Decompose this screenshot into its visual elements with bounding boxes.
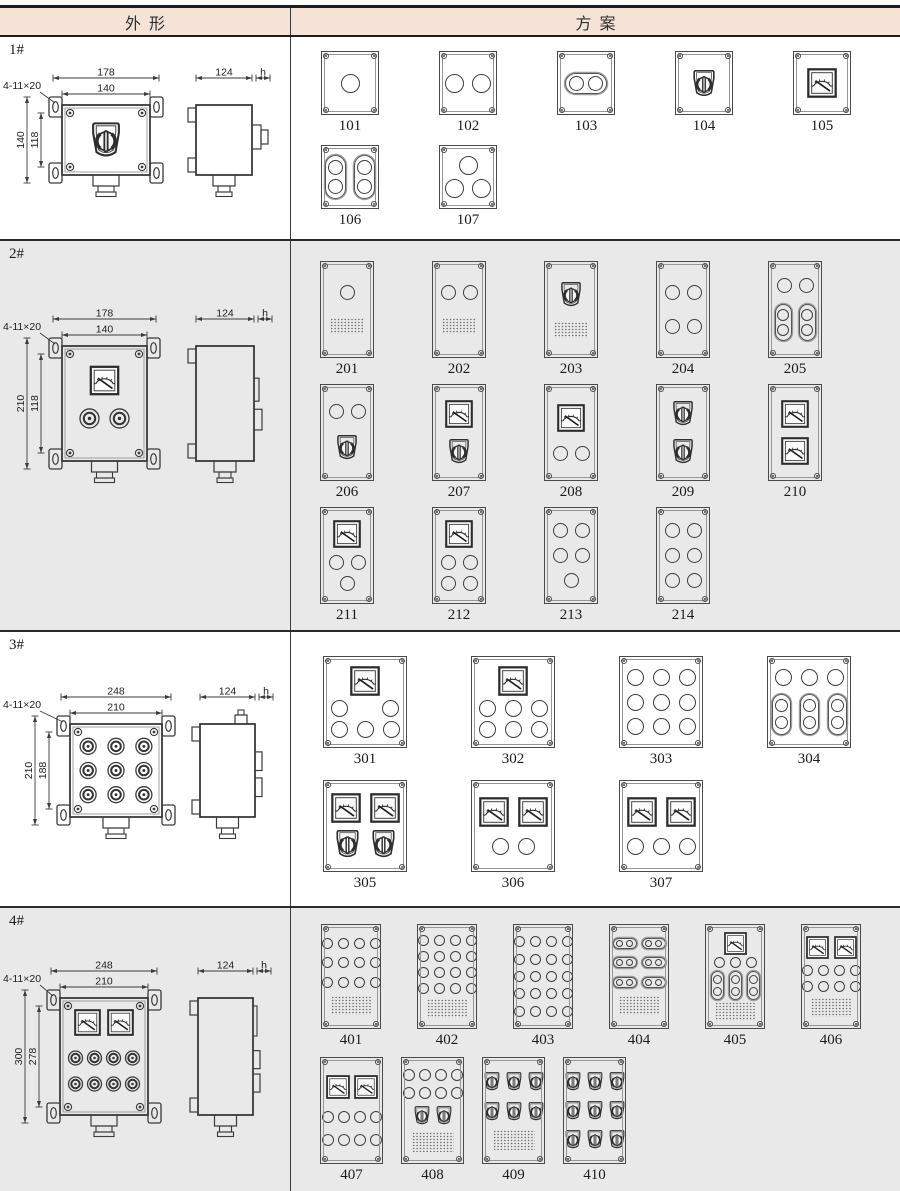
svg-text:4-11×20: 4-11×20 bbox=[3, 321, 41, 333]
button-icon bbox=[803, 699, 816, 712]
button-icon bbox=[653, 669, 670, 686]
panel-label: 409 bbox=[502, 1166, 525, 1184]
screw-icon bbox=[590, 509, 596, 515]
button-icon bbox=[546, 936, 557, 947]
screw-icon bbox=[325, 740, 331, 746]
panel-label: 207 bbox=[448, 483, 471, 501]
panel-row bbox=[333, 520, 361, 548]
scheme-slot: 304 bbox=[735, 656, 883, 768]
screw-icon bbox=[565, 1021, 571, 1027]
button-icon bbox=[418, 983, 429, 994]
screw-icon bbox=[621, 782, 627, 788]
screw-icon bbox=[795, 107, 801, 113]
button-icon bbox=[546, 988, 557, 999]
button-icon bbox=[354, 1111, 366, 1123]
panel-label: 201 bbox=[336, 360, 359, 378]
screw-icon bbox=[325, 864, 331, 870]
header-col-scheme: 方案 bbox=[291, 8, 900, 35]
panel-content bbox=[325, 390, 369, 475]
scheme-slot: 307 bbox=[587, 780, 735, 892]
panel-content bbox=[328, 786, 402, 866]
screw-icon bbox=[323, 53, 329, 59]
panel-content bbox=[773, 390, 817, 475]
screw-icon bbox=[590, 386, 596, 392]
selector-switch-icon bbox=[447, 438, 471, 465]
screw-icon bbox=[478, 386, 484, 392]
screw-icon bbox=[484, 1156, 490, 1162]
button-icon bbox=[713, 975, 722, 984]
button-icon bbox=[382, 700, 399, 717]
screw-icon bbox=[322, 386, 328, 392]
panel-row bbox=[613, 938, 666, 949]
meter-icon bbox=[479, 797, 509, 827]
screw-icon bbox=[478, 350, 484, 356]
svg-text:210: 210 bbox=[107, 702, 125, 714]
row-label-2: 2# bbox=[9, 246, 24, 263]
panel-row bbox=[322, 1134, 382, 1146]
scheme-slot: 408 bbox=[392, 1057, 473, 1184]
scheme-panel-405 bbox=[705, 924, 765, 1029]
panel-row bbox=[331, 721, 400, 738]
panel-row bbox=[445, 74, 491, 93]
panel-row bbox=[691, 69, 717, 98]
outline-drawing-1: 1401781181404-11×20124h bbox=[0, 37, 290, 237]
screw-icon bbox=[677, 53, 683, 59]
panel-row bbox=[418, 967, 477, 978]
twin-button-icon bbox=[565, 73, 607, 94]
scheme-panel-201 bbox=[320, 261, 374, 358]
scheme-slot: 105 bbox=[763, 51, 881, 135]
panel-content bbox=[614, 930, 664, 1023]
screw-icon bbox=[515, 1021, 521, 1027]
svg-text:124: 124 bbox=[219, 686, 237, 698]
screw-icon bbox=[441, 53, 447, 59]
svg-text:178: 178 bbox=[97, 67, 115, 79]
panel-content bbox=[710, 930, 760, 1023]
button-icon bbox=[505, 700, 522, 717]
svg-text:210: 210 bbox=[23, 762, 35, 780]
panel-content bbox=[798, 57, 846, 109]
screw-icon bbox=[366, 386, 372, 392]
panel-row bbox=[514, 1006, 573, 1017]
panel-row bbox=[418, 935, 477, 946]
screw-icon bbox=[366, 473, 372, 479]
screw-icon bbox=[403, 1156, 409, 1162]
scheme-subrow: 201202203204205 bbox=[291, 261, 900, 378]
panel-row bbox=[445, 179, 491, 198]
meter-icon bbox=[331, 793, 361, 823]
button-icon bbox=[687, 548, 702, 563]
scheme-subrow: 407408409410 bbox=[291, 1057, 900, 1184]
panel-row bbox=[802, 965, 861, 976]
outline-drawing-2: 1401781182104-11×20124h bbox=[0, 241, 290, 628]
scheme-slot: 101 bbox=[291, 51, 409, 135]
panel-label: 209 bbox=[672, 483, 695, 501]
button-icon bbox=[546, 954, 557, 965]
panel-label: 403 bbox=[532, 1031, 555, 1049]
scheme-subrow: 106107 bbox=[291, 145, 900, 229]
button-icon bbox=[679, 694, 696, 711]
button-icon bbox=[575, 523, 590, 538]
button-icon bbox=[370, 938, 381, 949]
button-icon bbox=[466, 983, 477, 994]
svg-text:h: h bbox=[263, 686, 269, 698]
panel-row bbox=[445, 400, 473, 428]
screw-icon bbox=[478, 473, 484, 479]
scheme-slot: 306 bbox=[439, 780, 587, 892]
selector-switch-icon bbox=[505, 1101, 523, 1122]
scheme-slot: 104 bbox=[645, 51, 763, 135]
svg-text:124: 124 bbox=[215, 67, 233, 79]
button-icon bbox=[530, 954, 541, 965]
scheme-panel-102 bbox=[439, 51, 497, 115]
panel-row bbox=[340, 576, 355, 591]
twin-button-icon bbox=[613, 957, 637, 968]
button-icon bbox=[357, 721, 374, 738]
button-icon bbox=[514, 1006, 525, 1017]
screw-icon bbox=[366, 596, 372, 602]
meter-icon bbox=[781, 400, 809, 428]
meter-icon bbox=[834, 936, 857, 959]
panel-row bbox=[627, 838, 696, 855]
button-icon bbox=[518, 838, 535, 855]
svg-text:210: 210 bbox=[15, 395, 27, 413]
button-icon bbox=[322, 957, 333, 968]
button-icon bbox=[450, 983, 461, 994]
panel-label: 407 bbox=[340, 1166, 363, 1184]
panel-label: 307 bbox=[650, 874, 673, 892]
label-plate-hatch bbox=[619, 996, 659, 1015]
svg-text:188: 188 bbox=[37, 762, 49, 780]
button-icon bbox=[749, 975, 758, 984]
screw-icon bbox=[695, 658, 701, 664]
scheme-panel-203 bbox=[544, 261, 598, 358]
panel-row bbox=[627, 694, 696, 711]
product-row-3: 3# 2102481882104-11×20124h 3013023033043… bbox=[0, 632, 900, 908]
panel-row bbox=[627, 797, 696, 827]
screw-icon bbox=[677, 107, 683, 113]
panel-content bbox=[487, 1063, 540, 1158]
panel-row bbox=[514, 936, 573, 947]
scheme-slot: 404 bbox=[591, 924, 687, 1049]
twin-button-icon bbox=[613, 977, 637, 988]
twin-button-icon bbox=[642, 977, 666, 988]
panel-row bbox=[492, 838, 535, 855]
selector-switch-icon bbox=[505, 1071, 523, 1092]
screw-icon bbox=[843, 107, 849, 113]
screw-icon bbox=[399, 658, 405, 664]
meter-icon bbox=[108, 1010, 133, 1035]
panel-content bbox=[476, 786, 550, 866]
outline-cell-4: 4# 2102482783004-11×20124h bbox=[0, 908, 291, 1191]
scheme-slot: 305 bbox=[291, 780, 439, 892]
meter-icon bbox=[807, 68, 837, 98]
button-icon bbox=[665, 319, 680, 334]
scheme-panel-202 bbox=[432, 261, 486, 358]
scheme-panel-306 bbox=[471, 780, 555, 872]
screw-icon bbox=[323, 201, 329, 207]
panel-row bbox=[498, 666, 528, 696]
button-icon bbox=[463, 555, 478, 570]
scheme-slot: 302 bbox=[439, 656, 587, 768]
panel-row bbox=[514, 954, 573, 965]
button-icon bbox=[713, 987, 722, 996]
scheme-subrow: 211212213214 bbox=[291, 507, 900, 624]
button-icon bbox=[530, 1006, 541, 1017]
panel-label: 214 bbox=[672, 606, 695, 624]
button-icon bbox=[435, 1069, 447, 1081]
panel-content bbox=[661, 390, 705, 475]
button-icon bbox=[354, 1134, 366, 1146]
panel-label: 202 bbox=[448, 360, 471, 378]
screw-icon bbox=[366, 350, 372, 356]
button-icon bbox=[546, 971, 557, 982]
twin-button-icon bbox=[772, 694, 791, 735]
scheme-panel-302 bbox=[471, 656, 555, 748]
screw-icon bbox=[441, 107, 447, 113]
scheme-panel-208 bbox=[544, 384, 598, 481]
button-icon bbox=[338, 938, 349, 949]
twin-button-icon bbox=[711, 971, 724, 1000]
panel-row bbox=[777, 278, 814, 293]
button-icon bbox=[616, 959, 623, 966]
button-icon bbox=[775, 699, 788, 712]
button-icon bbox=[679, 838, 696, 855]
meter-icon bbox=[445, 520, 473, 548]
button-icon bbox=[459, 156, 478, 175]
screw-icon bbox=[702, 509, 708, 515]
panel-row bbox=[322, 977, 381, 988]
panel-row bbox=[322, 957, 381, 968]
scheme-panel-207 bbox=[432, 384, 486, 481]
twin-button-icon bbox=[729, 971, 742, 1000]
screw-icon bbox=[371, 201, 377, 207]
selector-switch-icon bbox=[586, 1100, 604, 1121]
button-icon bbox=[626, 940, 633, 947]
panel-row bbox=[665, 548, 702, 563]
button-icon bbox=[370, 1111, 382, 1123]
svg-text:h: h bbox=[261, 960, 267, 972]
button-icon bbox=[450, 951, 461, 962]
screw-icon bbox=[537, 1156, 543, 1162]
panel-row bbox=[671, 438, 695, 465]
scheme-panel-105 bbox=[793, 51, 851, 115]
panel-content bbox=[326, 930, 376, 1023]
panel-content bbox=[325, 513, 369, 598]
screw-icon bbox=[419, 1021, 425, 1027]
button-icon bbox=[322, 1134, 334, 1146]
screw-icon bbox=[489, 107, 495, 113]
button-icon bbox=[775, 716, 788, 729]
scheme-slot: 204 bbox=[627, 261, 739, 378]
panel-row bbox=[772, 694, 847, 735]
button-icon bbox=[564, 573, 579, 588]
panel-row bbox=[479, 797, 548, 827]
panel-label: 406 bbox=[820, 1031, 843, 1049]
panel-content bbox=[624, 662, 698, 742]
panel-content bbox=[326, 151, 374, 203]
scheme-slot: 209 bbox=[627, 384, 739, 501]
screw-icon bbox=[559, 107, 565, 113]
scheme-panel-107 bbox=[439, 145, 497, 209]
selector-switch-icon bbox=[586, 1129, 604, 1150]
button-icon bbox=[340, 576, 355, 591]
panel-row bbox=[341, 74, 360, 93]
panel-row bbox=[775, 669, 844, 686]
svg-text:4-11×20: 4-11×20 bbox=[3, 973, 41, 985]
panel-row bbox=[781, 437, 809, 465]
panel-row bbox=[802, 981, 861, 992]
button-icon bbox=[505, 721, 522, 738]
button-icon bbox=[479, 721, 496, 738]
button-icon bbox=[730, 957, 741, 968]
panel-row bbox=[418, 983, 477, 994]
button-icon bbox=[553, 523, 568, 538]
button-icon bbox=[338, 1134, 350, 1146]
label-plate-hatch bbox=[331, 996, 371, 1015]
button-icon bbox=[562, 988, 573, 999]
svg-text:248: 248 bbox=[107, 686, 125, 698]
button-icon bbox=[655, 940, 662, 947]
scheme-panel-409 bbox=[482, 1057, 545, 1164]
outline-cell-2: 2# 1401781182104-11×20124h bbox=[0, 241, 291, 630]
label-plate-hatch bbox=[715, 1002, 755, 1021]
button-icon bbox=[338, 977, 349, 988]
button-icon bbox=[679, 669, 696, 686]
panel-row bbox=[412, 1132, 454, 1152]
header-col-outline: 外形 bbox=[0, 8, 291, 35]
screw-icon bbox=[618, 1059, 624, 1065]
button-icon bbox=[370, 957, 381, 968]
screw-icon bbox=[441, 201, 447, 207]
screw-icon bbox=[695, 740, 701, 746]
panel-content bbox=[437, 267, 481, 352]
screw-icon bbox=[814, 473, 820, 479]
button-icon bbox=[687, 523, 702, 538]
scheme-slot: 205 bbox=[739, 261, 851, 378]
button-icon bbox=[418, 967, 429, 978]
panel-row bbox=[322, 938, 381, 949]
screw-icon bbox=[611, 1021, 617, 1027]
panel-row bbox=[671, 400, 695, 427]
screw-icon bbox=[590, 473, 596, 479]
panel-content bbox=[680, 57, 728, 109]
twin-button-icon bbox=[642, 938, 666, 949]
screw-icon bbox=[322, 473, 328, 479]
twin-button-icon bbox=[325, 155, 346, 199]
panel-row bbox=[350, 666, 380, 696]
button-icon bbox=[653, 838, 670, 855]
screw-icon bbox=[853, 1021, 859, 1027]
button-icon bbox=[530, 936, 541, 947]
screw-icon bbox=[769, 658, 775, 664]
panel-label: 102 bbox=[457, 117, 480, 135]
svg-text:300: 300 bbox=[13, 1048, 25, 1066]
scheme-panel-410 bbox=[563, 1057, 626, 1164]
panel-row bbox=[447, 438, 471, 465]
screw-icon bbox=[322, 509, 328, 515]
button-icon bbox=[514, 936, 525, 947]
button-icon bbox=[463, 576, 478, 591]
panel-row bbox=[514, 971, 573, 982]
panel-content bbox=[437, 390, 481, 475]
scheme-panel-406 bbox=[801, 924, 861, 1029]
scheme-subrow: 401402403404405406 bbox=[291, 924, 900, 1049]
svg-text:140: 140 bbox=[96, 324, 114, 336]
screw-icon bbox=[478, 509, 484, 515]
screw-icon bbox=[322, 350, 328, 356]
selector-switch-icon bbox=[691, 69, 717, 98]
screw-icon bbox=[853, 926, 859, 932]
button-icon bbox=[329, 404, 344, 419]
twin-button-icon bbox=[613, 938, 637, 949]
button-icon bbox=[514, 971, 525, 982]
screw-icon bbox=[769, 740, 775, 746]
panel-row bbox=[627, 669, 696, 686]
scheme-panel-103 bbox=[557, 51, 615, 115]
scheme-slot: 210 bbox=[739, 384, 851, 501]
screw-icon bbox=[371, 107, 377, 113]
panel-row bbox=[775, 304, 816, 341]
panel-content bbox=[549, 390, 593, 475]
selector-switch-icon bbox=[608, 1129, 626, 1150]
scheme-slot: 406 bbox=[783, 924, 879, 1049]
meter-icon bbox=[91, 367, 118, 394]
button-icon bbox=[653, 718, 670, 735]
spacer bbox=[357, 708, 373, 709]
button-icon bbox=[775, 669, 792, 686]
label-plate-hatch bbox=[493, 1130, 535, 1150]
screw-icon bbox=[565, 1059, 571, 1065]
svg-text:118: 118 bbox=[29, 131, 41, 148]
panel-row bbox=[459, 156, 478, 175]
screw-icon bbox=[565, 1156, 571, 1162]
label-plate-hatch bbox=[811, 998, 851, 1017]
outline-drawing-4: 2102482783004-11×20124h bbox=[0, 908, 290, 1191]
label-plate-hatch bbox=[427, 999, 467, 1018]
scheme-slot: 106 bbox=[291, 145, 409, 229]
panel-row bbox=[322, 1111, 382, 1123]
screw-icon bbox=[611, 926, 617, 932]
panel-label: 105 bbox=[811, 117, 834, 135]
row-label-4: 4# bbox=[9, 913, 24, 930]
button-icon bbox=[799, 278, 814, 293]
panel-content bbox=[549, 513, 593, 598]
screw-icon bbox=[478, 596, 484, 602]
panel-row bbox=[665, 319, 702, 334]
panel-row bbox=[807, 68, 837, 98]
screw-icon bbox=[484, 1059, 490, 1065]
scheme-slot: 103 bbox=[527, 51, 645, 135]
button-icon bbox=[383, 721, 400, 738]
scheme-panel-205 bbox=[768, 261, 822, 358]
button-icon bbox=[626, 979, 633, 986]
button-icon bbox=[328, 179, 343, 194]
scheme-panel-214 bbox=[656, 507, 710, 604]
scheme-slot: 202 bbox=[403, 261, 515, 378]
panel-label: 206 bbox=[336, 483, 359, 501]
svg-text:278: 278 bbox=[27, 1048, 39, 1066]
screw-icon bbox=[814, 263, 820, 269]
button-icon bbox=[472, 74, 491, 93]
screw-icon bbox=[371, 147, 377, 153]
screw-icon bbox=[590, 350, 596, 356]
panel-content bbox=[568, 1063, 621, 1158]
svg-text:118: 118 bbox=[29, 395, 41, 412]
meter-icon bbox=[445, 400, 473, 428]
button-icon bbox=[562, 971, 573, 982]
meter-icon bbox=[666, 797, 696, 827]
